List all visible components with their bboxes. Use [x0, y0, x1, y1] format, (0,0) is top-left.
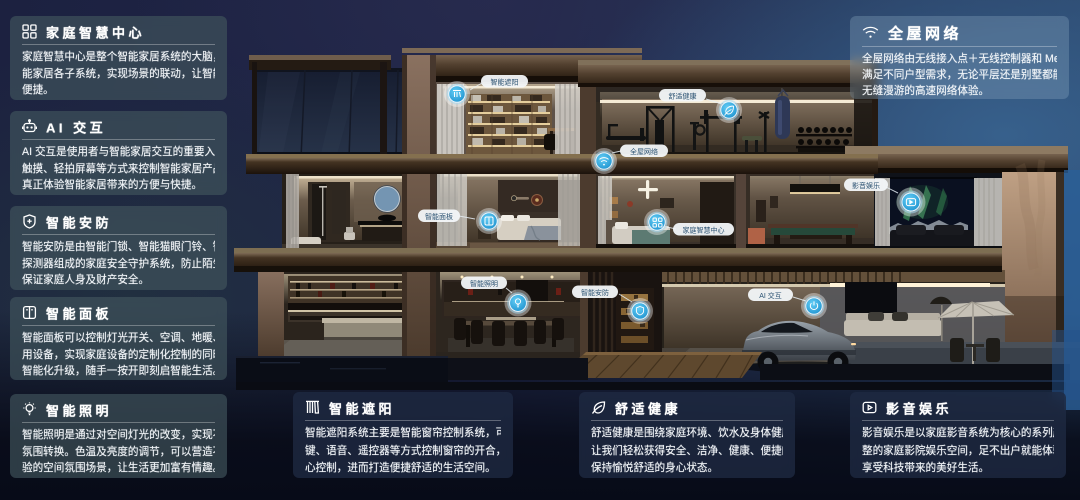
svg-text:家庭智慧中心: 家庭智慧中心 [683, 225, 725, 234]
svg-text:智能照明: 智能照明 [470, 279, 498, 288]
svg-text:智能面板: 智能面板 [425, 212, 453, 221]
svg-text:智能安防: 智能安防 [581, 288, 609, 297]
svg-text:影音娱乐: 影音娱乐 [852, 181, 880, 190]
svg-text:舒适健康: 舒适健康 [669, 91, 697, 100]
svg-text:AI 交互: AI 交互 [759, 291, 782, 300]
svg-text:智能遮阳: 智能遮阳 [491, 77, 519, 86]
svg-text:全屋网络: 全屋网络 [630, 147, 658, 156]
